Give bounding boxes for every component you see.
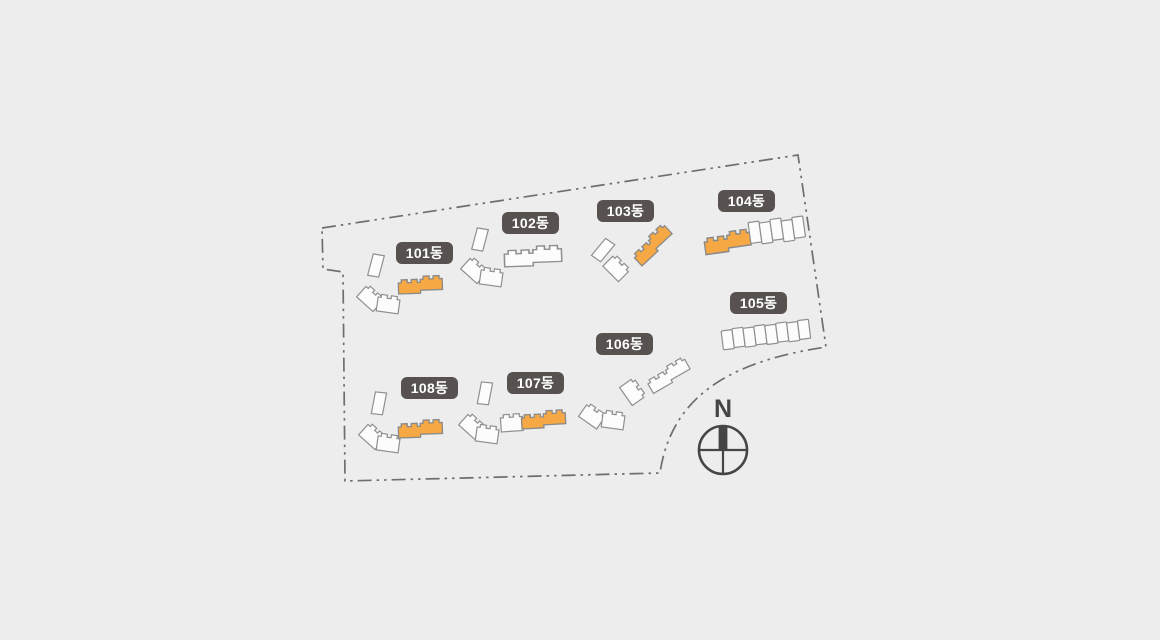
compass-rose-icon	[699, 426, 747, 474]
building-label-101[interactable]: 101동	[396, 242, 453, 264]
building-108-footprint[interactable]	[359, 390, 443, 453]
building-label-105-text: 105동	[740, 293, 777, 313]
site-plan: 101동 102동 103동 104동 105동 106동 107동 108동 …	[0, 0, 1160, 640]
building-label-104[interactable]: 104동	[718, 190, 775, 212]
building-106-footprint[interactable]	[579, 357, 692, 430]
site-map-canvas	[0, 0, 1160, 640]
building-label-102[interactable]: 102동	[502, 212, 559, 234]
building-label-103[interactable]: 103동	[597, 200, 654, 222]
compass-north-label: N	[708, 395, 738, 424]
building-label-101-text: 101동	[406, 243, 443, 263]
building-label-108[interactable]: 108동	[401, 377, 458, 399]
building-label-105[interactable]: 105동	[730, 292, 787, 314]
building-103-footprint[interactable]	[590, 223, 674, 281]
building-104-footprint[interactable]	[702, 215, 806, 255]
building-label-107[interactable]: 107동	[507, 372, 564, 394]
building-label-106-text: 106동	[606, 334, 643, 354]
building-102-footprint[interactable]	[461, 226, 562, 287]
building-label-102-text: 102동	[512, 213, 549, 233]
building-label-104-text: 104동	[728, 191, 765, 211]
building-label-103-text: 103동	[607, 201, 644, 221]
building-label-106[interactable]: 106동	[596, 333, 653, 355]
building-label-107-text: 107동	[517, 373, 554, 393]
building-105-footprint[interactable]	[721, 319, 811, 350]
building-label-108-text: 108동	[411, 378, 448, 398]
